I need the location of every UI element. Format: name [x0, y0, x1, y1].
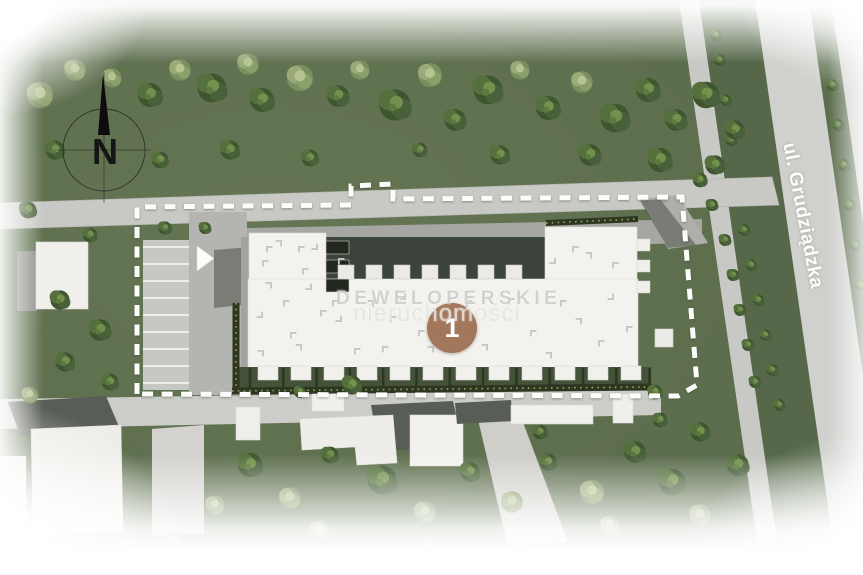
building-marker-1[interactable]: 1 [427, 303, 477, 353]
site-plan-map [0, 0, 863, 575]
site-plan-image: N ul. Grudziądzka 1 DEWELOPERSKIE nieruc… [0, 0, 863, 575]
east-balconies [637, 239, 650, 293]
utility-box [655, 329, 673, 347]
